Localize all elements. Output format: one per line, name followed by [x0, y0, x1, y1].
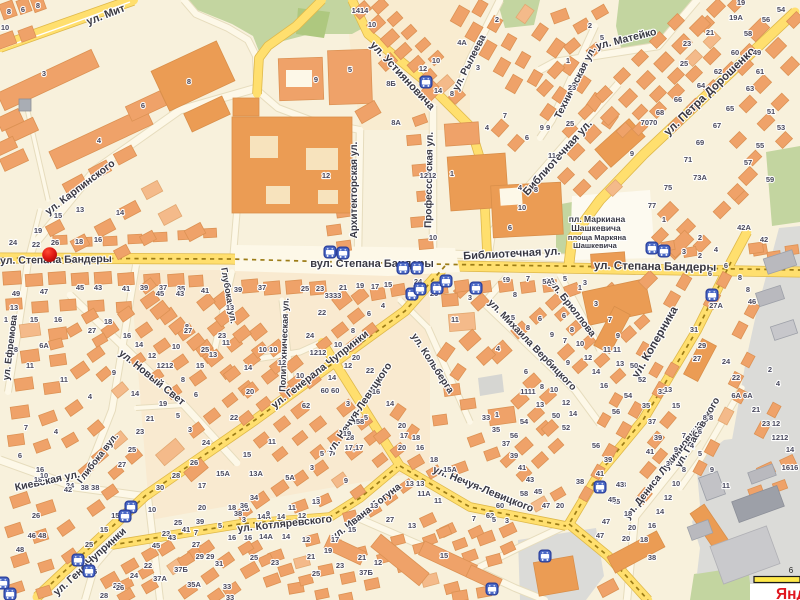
svg-text:9: 9	[506, 275, 510, 284]
svg-text:20: 20	[398, 421, 406, 430]
svg-text:3: 3	[310, 463, 314, 472]
svg-text:14А: 14А	[259, 532, 273, 541]
svg-text:15: 15	[100, 525, 108, 534]
svg-text:37Б: 37Б	[174, 565, 188, 574]
svg-text:7: 7	[194, 528, 198, 537]
svg-text:66: 66	[674, 95, 682, 104]
svg-text:10: 10	[368, 20, 376, 29]
svg-text:33: 33	[482, 413, 490, 422]
svg-text:23: 23	[316, 284, 324, 293]
svg-text:18: 18	[412, 433, 420, 442]
svg-text:15: 15	[440, 551, 448, 560]
svg-text:39: 39	[510, 451, 518, 460]
svg-text:37: 37	[648, 417, 656, 426]
svg-text:11 11: 11 11	[603, 345, 621, 354]
svg-text:37: 37	[258, 283, 266, 292]
svg-text:1212: 1212	[420, 171, 437, 180]
svg-text:9: 9	[314, 75, 318, 84]
svg-text:23: 23	[568, 83, 576, 92]
svg-text:10: 10	[172, 342, 180, 351]
svg-text:12: 12	[584, 353, 592, 362]
svg-text:1616: 1616	[782, 463, 799, 472]
svg-text:8: 8	[534, 185, 538, 194]
svg-text:7070: 7070	[641, 118, 658, 127]
svg-text:47: 47	[596, 531, 604, 540]
svg-text:19: 19	[34, 226, 42, 235]
svg-text:13: 13	[226, 303, 234, 312]
svg-text:14: 14	[434, 86, 443, 95]
svg-text:7: 7	[329, 449, 333, 458]
svg-text:38: 38	[234, 509, 242, 518]
svg-text:26: 26	[190, 458, 198, 467]
svg-text:10: 10	[432, 56, 440, 65]
svg-text:8: 8	[36, 1, 40, 10]
svg-text:20: 20	[246, 387, 254, 396]
svg-text:15: 15	[672, 401, 680, 410]
svg-text:16: 16	[648, 521, 656, 530]
svg-text:41: 41	[518, 463, 526, 472]
svg-text:9: 9	[266, 509, 270, 518]
svg-text:58: 58	[520, 489, 528, 498]
svg-text:3: 3	[505, 516, 509, 525]
svg-text:41: 41	[646, 447, 654, 456]
svg-text:15: 15	[384, 280, 392, 289]
svg-text:5: 5	[364, 413, 368, 422]
svg-text:77: 77	[648, 201, 656, 210]
svg-text:16: 16	[372, 387, 380, 396]
svg-text:60 60: 60 60	[321, 386, 340, 395]
svg-text:14: 14	[135, 340, 144, 349]
svg-text:8: 8	[570, 325, 574, 334]
svg-text:69: 69	[696, 138, 704, 147]
svg-text:39: 39	[654, 433, 662, 442]
svg-text:29: 29	[698, 341, 706, 350]
svg-text:3: 3	[682, 247, 686, 256]
svg-text:25: 25	[250, 553, 258, 562]
svg-text:13: 13	[664, 385, 672, 394]
svg-text:10: 10	[550, 385, 558, 394]
svg-text:67: 67	[713, 121, 721, 130]
svg-text:19: 19	[356, 281, 364, 290]
svg-text:1212: 1212	[310, 348, 327, 357]
svg-text:3: 3	[42, 69, 46, 78]
svg-text:56: 56	[510, 431, 518, 440]
svg-text:18: 18	[75, 237, 83, 246]
svg-text:23: 23	[762, 419, 770, 428]
svg-text:59: 59	[766, 175, 774, 184]
svg-text:49: 49	[753, 48, 761, 57]
svg-text:38: 38	[648, 553, 656, 562]
svg-text:17: 17	[331, 535, 339, 544]
svg-text:6: 6	[562, 311, 566, 320]
svg-text:8: 8	[526, 323, 530, 332]
svg-text:25: 25	[201, 345, 209, 354]
svg-text:6А: 6А	[39, 341, 49, 350]
svg-text:16: 16	[94, 235, 102, 244]
svg-text:8: 8	[14, 345, 18, 354]
svg-text:6: 6	[508, 223, 512, 232]
svg-text:39: 39	[196, 517, 204, 526]
svg-text:3: 3	[468, 293, 472, 302]
svg-text:10: 10	[429, 233, 437, 242]
svg-text:15А: 15А	[443, 465, 457, 474]
svg-text:5: 5	[698, 449, 702, 458]
svg-text:7: 7	[503, 111, 507, 120]
svg-text:12: 12	[302, 535, 310, 544]
svg-text:21: 21	[339, 283, 347, 292]
svg-text:52: 52	[638, 375, 646, 384]
svg-text:18: 18	[624, 509, 632, 518]
svg-text:10: 10	[1, 23, 9, 32]
svg-text:19: 19	[159, 399, 167, 408]
svg-text:1212: 1212	[157, 361, 174, 370]
svg-text:3: 3	[346, 399, 350, 408]
svg-text:12: 12	[322, 171, 330, 180]
svg-text:48: 48	[16, 545, 24, 554]
svg-text:19А: 19А	[729, 13, 743, 22]
svg-text:38: 38	[576, 477, 584, 486]
svg-text:37А: 37А	[153, 574, 167, 583]
svg-text:16: 16	[123, 331, 131, 340]
svg-text:56: 56	[592, 441, 600, 450]
svg-text:14: 14	[386, 399, 395, 408]
svg-text:15: 15	[30, 315, 38, 324]
svg-text:27: 27	[386, 515, 394, 524]
svg-text:33: 33	[226, 593, 234, 600]
svg-text:8: 8	[746, 285, 750, 294]
svg-text:18: 18	[640, 535, 648, 544]
svg-text:52: 52	[562, 423, 570, 432]
svg-text:10: 10	[672, 479, 680, 488]
svg-text:8: 8	[738, 273, 742, 282]
svg-text:30: 30	[156, 483, 164, 492]
svg-text:9: 9	[566, 358, 570, 367]
svg-text:14: 14	[116, 208, 125, 217]
svg-text:23: 23	[683, 39, 691, 48]
svg-text:6: 6	[141, 101, 145, 110]
svg-text:8: 8	[450, 89, 454, 98]
svg-text:37: 37	[502, 439, 510, 448]
svg-text:9: 9	[550, 330, 554, 339]
svg-text:20: 20	[628, 523, 636, 532]
svg-text:1111: 1111	[520, 387, 535, 396]
svg-text:47: 47	[602, 517, 610, 526]
svg-text:57: 57	[744, 158, 752, 167]
svg-text:5: 5	[511, 313, 515, 322]
svg-text:14: 14	[244, 363, 253, 372]
svg-text:19: 19	[343, 429, 351, 438]
svg-text:25: 25	[680, 59, 688, 68]
svg-text:50: 50	[630, 361, 638, 370]
svg-text:8: 8	[682, 465, 686, 474]
svg-text:6: 6	[367, 309, 371, 318]
svg-text:13: 13	[209, 350, 217, 359]
svg-text:42А: 42А	[737, 223, 751, 232]
svg-text:10: 10	[518, 203, 526, 212]
svg-text:4А: 4А	[457, 38, 467, 47]
svg-text:13: 13	[616, 359, 624, 368]
svg-text:17: 17	[371, 282, 379, 291]
svg-text:41: 41	[201, 286, 209, 295]
svg-text:3: 3	[594, 299, 598, 308]
svg-text:46: 46	[748, 297, 756, 306]
svg-text:7: 7	[472, 514, 476, 523]
svg-text:45: 45	[152, 541, 160, 550]
svg-text:10 10: 10 10	[259, 345, 278, 354]
svg-text:9 9: 9 9	[540, 123, 550, 132]
svg-text:35: 35	[642, 401, 650, 410]
svg-text:9: 9	[344, 476, 348, 485]
svg-text:73А: 73А	[693, 173, 707, 182]
svg-text:11: 11	[722, 481, 730, 490]
svg-text:13: 13	[536, 400, 544, 409]
svg-text:45: 45	[534, 487, 542, 496]
svg-text:24: 24	[130, 571, 139, 580]
svg-text:24: 24	[202, 438, 211, 447]
svg-text:7: 7	[563, 336, 567, 345]
svg-text:62: 62	[302, 401, 310, 410]
svg-text:11А: 11А	[417, 489, 431, 498]
svg-text:25: 25	[301, 284, 309, 293]
svg-text:37Б: 37Б	[359, 568, 373, 577]
svg-text:5: 5	[320, 449, 324, 458]
svg-text:11: 11	[268, 437, 276, 446]
svg-text:3: 3	[583, 278, 587, 287]
svg-text:16: 16	[228, 533, 236, 542]
svg-text:6: 6	[18, 451, 22, 460]
svg-text:3: 3	[476, 63, 480, 72]
svg-text:11: 11	[451, 315, 459, 324]
svg-text:14: 14	[131, 389, 140, 398]
svg-text:5: 5	[563, 274, 567, 283]
svg-text:21: 21	[358, 553, 366, 562]
svg-text:8: 8	[513, 290, 517, 299]
svg-text:45: 45	[76, 283, 84, 292]
svg-text:53: 53	[777, 123, 785, 132]
svg-text:34: 34	[250, 493, 259, 502]
svg-text:20: 20	[352, 353, 360, 362]
svg-text:17: 17	[400, 431, 408, 440]
svg-text:10: 10	[334, 340, 342, 349]
svg-text:1212: 1212	[772, 433, 789, 442]
svg-text:10: 10	[40, 471, 48, 480]
svg-text:14: 14	[328, 373, 337, 382]
svg-text:14: 14	[656, 507, 665, 516]
svg-text:14: 14	[282, 532, 291, 541]
svg-text:23: 23	[136, 427, 144, 436]
svg-text:13: 13	[370, 501, 378, 510]
svg-text:60: 60	[496, 501, 504, 510]
svg-text:Шашкевича: Шашкевича	[573, 241, 617, 250]
svg-text:8А: 8А	[391, 118, 401, 127]
svg-text:6: 6	[698, 427, 702, 436]
svg-text:20: 20	[398, 443, 406, 452]
svg-text:6: 6	[724, 261, 728, 270]
svg-text:16: 16	[244, 533, 252, 542]
svg-text:3: 3	[188, 425, 192, 434]
svg-text:24: 24	[722, 357, 731, 366]
svg-text:41: 41	[122, 284, 130, 293]
svg-text:21: 21	[706, 28, 714, 37]
svg-text:11: 11	[548, 151, 556, 160]
svg-text:5А: 5А	[542, 277, 552, 286]
svg-text:7: 7	[526, 274, 530, 283]
svg-text:21: 21	[146, 414, 154, 423]
svg-text:56: 56	[612, 407, 620, 416]
svg-text:33: 33	[223, 582, 231, 591]
svg-text:1: 1	[495, 410, 499, 419]
svg-text:47: 47	[542, 501, 550, 510]
svg-text:9: 9	[616, 331, 620, 340]
svg-text:18: 18	[104, 317, 112, 326]
svg-text:5: 5	[492, 515, 496, 524]
svg-text:2: 2	[495, 15, 499, 24]
svg-text:9: 9	[630, 149, 634, 158]
svg-text:6: 6	[538, 314, 542, 323]
svg-text:35А: 35А	[187, 580, 201, 589]
svg-text:46 48: 46 48	[28, 531, 47, 540]
svg-text:13: 13	[76, 205, 84, 214]
svg-text:23: 23	[336, 561, 344, 570]
svg-text:24: 24	[306, 331, 315, 340]
svg-text:1: 1	[4, 315, 8, 324]
svg-text:42: 42	[760, 235, 768, 244]
svg-text:25: 25	[85, 540, 93, 549]
svg-text:23: 23	[218, 331, 226, 340]
svg-text:42: 42	[64, 485, 72, 494]
svg-text:13: 13	[312, 497, 320, 506]
svg-text:14: 14	[569, 409, 578, 418]
svg-text:7: 7	[608, 315, 612, 324]
svg-text:22: 22	[144, 561, 152, 570]
svg-text:16: 16	[54, 315, 62, 324]
svg-text:6: 6	[708, 269, 712, 278]
svg-text:12: 12	[562, 398, 570, 407]
svg-text:15: 15	[243, 450, 251, 459]
svg-text:61: 61	[756, 67, 764, 76]
svg-text:6: 6	[789, 566, 794, 575]
svg-text:27: 27	[693, 354, 701, 363]
svg-text:5: 5	[218, 521, 222, 530]
svg-text:23: 23	[271, 558, 279, 567]
svg-text:10: 10	[296, 371, 304, 380]
svg-text:6: 6	[194, 390, 198, 399]
svg-text:1: 1	[450, 169, 454, 178]
svg-text:12: 12	[298, 511, 306, 520]
svg-text:9: 9	[710, 465, 714, 474]
svg-text:27: 27	[88, 326, 96, 335]
svg-text:68: 68	[656, 108, 664, 117]
svg-text:2: 2	[768, 365, 772, 374]
svg-text:9: 9	[112, 368, 116, 377]
svg-text:43: 43	[526, 475, 534, 484]
svg-text:41: 41	[596, 469, 604, 478]
svg-text:6: 6	[21, 5, 25, 14]
svg-text:13 13: 13 13	[406, 479, 425, 488]
svg-text:64: 64	[697, 81, 706, 90]
svg-text:50: 50	[552, 411, 560, 420]
svg-text:27: 27	[118, 460, 126, 469]
svg-text:35: 35	[492, 425, 500, 434]
svg-text:Яндекс: Яндекс	[776, 586, 800, 600]
svg-text:16: 16	[416, 443, 424, 452]
svg-text:15: 15	[196, 361, 204, 370]
svg-text:22: 22	[32, 240, 40, 249]
svg-text:65: 65	[726, 104, 734, 113]
svg-text:15А: 15А	[216, 469, 230, 478]
svg-text:8Б: 8Б	[386, 79, 396, 88]
svg-text:Архитекторская ул.: Архитекторская ул.	[349, 141, 360, 238]
svg-text:38 38: 38 38	[81, 483, 100, 492]
svg-text:3: 3	[242, 515, 246, 524]
svg-text:39: 39	[604, 455, 612, 464]
svg-text:54: 54	[624, 391, 633, 400]
svg-text:19: 19	[737, 0, 745, 7]
svg-text:15: 15	[54, 211, 62, 220]
svg-text:1: 1	[662, 215, 666, 224]
svg-text:71: 71	[684, 155, 692, 164]
svg-text:1: 1	[566, 56, 570, 65]
svg-text:17,17: 17,17	[345, 443, 364, 452]
svg-text:12: 12	[664, 493, 672, 502]
svg-text:6: 6	[524, 367, 528, 376]
svg-text:13А: 13А	[249, 469, 263, 478]
svg-text:43: 43	[176, 289, 184, 298]
svg-text:7: 7	[24, 423, 28, 432]
svg-text:8: 8	[187, 77, 191, 86]
svg-text:22: 22	[230, 413, 238, 422]
svg-text:8: 8	[181, 375, 185, 384]
svg-text:28: 28	[172, 471, 180, 480]
svg-text:27: 27	[192, 540, 200, 549]
svg-text:10: 10	[148, 505, 156, 514]
svg-text:58: 58	[744, 29, 752, 38]
svg-text:56: 56	[762, 15, 770, 24]
svg-text:25: 25	[566, 119, 574, 128]
svg-text:21: 21	[752, 405, 760, 414]
svg-text:12: 12	[772, 419, 780, 428]
svg-text:43: 43	[168, 533, 176, 542]
svg-text:26: 26	[116, 583, 124, 592]
svg-text:63: 63	[746, 84, 754, 93]
svg-text:7: 7	[682, 431, 686, 440]
svg-text:8: 8	[540, 382, 544, 391]
svg-text:43: 43	[94, 283, 102, 292]
svg-text:16: 16	[600, 381, 608, 390]
svg-text:14: 14	[277, 512, 286, 521]
svg-text:3: 3	[666, 459, 670, 468]
svg-text:19: 19	[324, 546, 332, 555]
svg-text:21: 21	[307, 552, 315, 561]
svg-text:20: 20	[622, 534, 630, 543]
svg-text:25: 25	[312, 569, 320, 578]
svg-text:24: 24	[9, 238, 18, 247]
svg-text:75: 75	[664, 183, 672, 192]
svg-text:27: 27	[184, 326, 192, 335]
svg-text:17: 17	[198, 481, 206, 490]
svg-text:58: 58	[356, 417, 364, 426]
svg-text:1: 1	[578, 283, 582, 292]
svg-text:11: 11	[26, 361, 34, 370]
svg-text:60: 60	[731, 48, 739, 57]
svg-text:5: 5	[348, 65, 352, 74]
svg-text:62: 62	[714, 67, 722, 76]
svg-text:22: 22	[366, 366, 374, 375]
svg-text:6: 6	[525, 133, 529, 142]
svg-text:8: 8	[7, 7, 11, 16]
svg-text:6А 6А: 6А 6А	[731, 391, 753, 400]
svg-text:10: 10	[576, 339, 584, 348]
